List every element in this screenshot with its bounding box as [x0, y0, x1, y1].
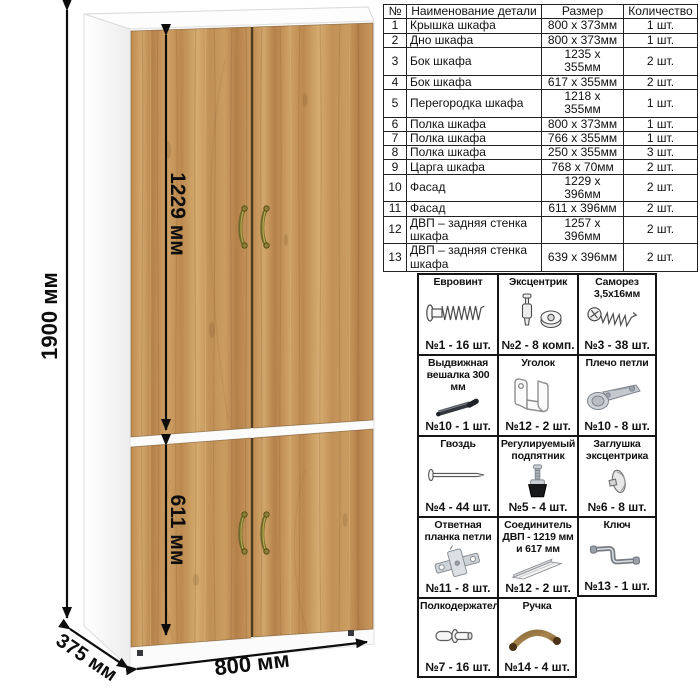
hardware-item-count: №4 - 44 шт.	[425, 500, 491, 515]
hardware-item-count: №10 - 1 шт.	[425, 419, 491, 434]
part-name: Полка шкафа	[407, 146, 542, 160]
shelf-pin-icon	[420, 613, 496, 660]
hex-key-icon	[580, 532, 654, 579]
table-row: 7 Полка шкафа 766 х 355мм 1 шт.	[384, 131, 698, 145]
part-size: 250 х 355мм	[542, 146, 624, 160]
wardrobe-body	[84, 7, 374, 690]
part-name: Царга шкафа	[407, 160, 542, 174]
hardware-item-cam-cap: Заглушка эксцентрика №6 - 8 шт.	[577, 435, 657, 516]
hinge-arm-icon	[580, 370, 654, 419]
part-num: 5	[384, 89, 407, 117]
table-row: 5 Перегородка шкафа 1218 х 355мм 1 шт.	[384, 89, 698, 117]
part-name: ДВП – задняя стенка шкафа	[407, 216, 542, 244]
hardware-item-count: №5 - 4 шт.	[509, 500, 568, 515]
part-size: 800 х 373мм	[542, 33, 624, 47]
hardware-item-hanger: Выдвижная вешалка 300 мм №10 - 1 шт.	[417, 354, 497, 435]
table-row: 13 ДВП – задняя стенка шкафа 639 х 396мм…	[384, 244, 698, 272]
upper-facade-dimension-label: 1229 мм	[166, 172, 189, 256]
hardware-item-title: Соединитель ДВП - 1219 мм и 617 мм	[500, 520, 576, 555]
upper-left-door	[131, 27, 251, 437]
part-num: 12	[384, 216, 407, 244]
table-row: 12 ДВП – задняя стенка шкафа 1257 х 396м…	[384, 216, 698, 244]
hardware-item-count: №14 - 4 шт.	[504, 660, 570, 675]
table-row: 1 Крышка шкафа 800 х 373мм 1 шт.	[384, 19, 698, 33]
part-num: 3	[384, 47, 407, 75]
hardware-item-title: Заглушка эксцентрика	[580, 439, 654, 463]
part-name: Дно шкафа	[407, 33, 542, 47]
handle-icon	[500, 613, 574, 660]
part-name: Крышка шкафа	[407, 19, 542, 33]
euro-screw-icon	[420, 289, 496, 338]
self-tapping-screw-icon	[580, 301, 654, 339]
hardware-item-title: Полкодержатель	[420, 601, 496, 613]
part-num: 8	[384, 146, 407, 160]
hardware-item-key: Ключ №13 - 1 шт.	[577, 516, 657, 597]
hardware-item-bracket: Уголок №12 - 2 шт.	[497, 354, 577, 435]
hardware-item-count: №13 - 1 шт.	[584, 579, 650, 594]
hardware-item-hinge-arm: Плечо петли №10 - 8 шт.	[577, 354, 657, 435]
part-num: 6	[384, 117, 407, 131]
hardware-item-handle: Ручка №14 - 4 шт.	[497, 597, 577, 678]
hardware-item-title: Выдвижная вешалка 300 мм	[420, 358, 496, 393]
lower-left-door	[131, 438, 251, 647]
foot-left	[137, 650, 143, 656]
hinge-plate-icon	[420, 544, 496, 582]
part-qty: 2 шт.	[624, 174, 698, 202]
hardware-item-title: Евровинт	[420, 277, 496, 289]
table-row: 9 Царга шкафа 768 х 70мм 2 шт.	[384, 160, 698, 174]
part-size: 768 х 70мм	[542, 160, 624, 174]
hardware-item-hdf-connector: Соединитель ДВП - 1219 мм и 617 мм №12 -…	[497, 516, 577, 597]
hardware-grid: Евровинт №1 - 16 шт. Эксцентрик	[417, 273, 657, 678]
part-qty: 2 шт.	[624, 202, 698, 216]
part-num: 7	[384, 131, 407, 145]
hardware-item-title: Регулируемый подпятник	[500, 439, 576, 463]
part-name: Полка шкафа	[407, 131, 542, 145]
col-header-size: Размер	[542, 5, 624, 19]
part-size: 611 х 396мм	[542, 202, 624, 216]
part-qty: 1 шт.	[624, 19, 698, 33]
hardware-item-title: Ручка	[500, 601, 574, 613]
part-qty: 1 шт.	[624, 89, 698, 117]
lower-facade-dimension-label: 611 мм	[166, 495, 189, 566]
hardware-item-shelf-pin: Полкодержатель №7 - 16 шт.	[417, 597, 497, 678]
hardware-item-title: Эксцентрик	[500, 277, 576, 289]
part-size: 617 х 355мм	[542, 75, 624, 89]
hardware-item-title: Уголок	[500, 358, 576, 370]
hardware-item-title: Ключ	[580, 520, 654, 532]
part-num: 2	[384, 33, 407, 47]
col-header-name: Наименование детали	[407, 5, 542, 19]
hardware-item-samorez: Саморез 3,5х16мм №3 - 38 шт.	[577, 273, 657, 354]
col-header-qty: Количество	[624, 5, 698, 19]
hardware-item-count: №2 - 8 комп.	[501, 338, 574, 353]
adjustable-foot-icon	[500, 463, 576, 501]
part-size: 1218 х 355мм	[542, 89, 624, 117]
part-num: 9	[384, 160, 407, 174]
lower-right-door	[253, 429, 373, 637]
part-name: Бок шкафа	[407, 47, 542, 75]
part-size: 639 х 396мм	[542, 244, 624, 272]
part-size: 1235 х 355мм	[542, 47, 624, 75]
part-size: 1257 х 396мм	[542, 216, 624, 244]
part-size: 1229 х 396мм	[542, 174, 624, 202]
table-row: 11 Фасад 611 х 396мм 2 шт.	[384, 202, 698, 216]
part-qty: 2 шт.	[624, 216, 698, 244]
part-num: 1	[384, 19, 407, 33]
part-qty: 2 шт.	[624, 47, 698, 75]
hardware-item-hinge-plate: Ответная планка петли №11 - 8 шт.	[417, 516, 497, 597]
part-qty: 2 шт.	[624, 244, 698, 272]
cam-cap-icon	[580, 463, 654, 501]
table-row: 6 Полка шкафа 800 х 373мм 1 шт.	[384, 117, 698, 131]
hardware-item-eccentric: Эксцентрик №2 - 8 комп.	[497, 273, 577, 354]
hardware-item-count: №12 - 2 шт.	[505, 419, 571, 434]
hdf-connector-icon	[500, 555, 576, 581]
part-name: Перегородка шкафа	[407, 89, 542, 117]
hardware-item-count: №3 - 38 шт.	[584, 338, 650, 353]
wardrobe-side-panel	[84, 14, 130, 668]
hardware-item-foot: Регулируемый подпятник №5 - 4 шт.	[497, 435, 577, 516]
part-size: 766 х 355мм	[542, 131, 624, 145]
table-row: 4 Бок шкафа 617 х 355мм 2 шт.	[384, 75, 698, 89]
nail-icon	[420, 451, 496, 500]
table-row: 10 Фасад 1229 х 396мм 2 шт.	[384, 174, 698, 202]
part-num: 11	[384, 202, 407, 216]
hardware-item-count: №1 - 16 шт.	[425, 338, 491, 353]
part-name: Фасад	[407, 174, 542, 202]
hardware-item-title: Ответная планка петли	[420, 520, 496, 544]
cam-lock-icon	[500, 289, 576, 338]
table-header-row: № Наименование детали Размер Количество	[384, 5, 698, 19]
part-qty: 2 шт.	[624, 160, 698, 174]
part-name: ДВП – задняя стенка шкафа	[407, 244, 542, 272]
table-row: 3 Бок шкафа 1235 х 355мм 2 шт.	[384, 47, 698, 75]
hardware-item-count: №6 - 8 шт.	[588, 500, 647, 515]
part-name: Бок шкафа	[407, 75, 542, 89]
part-size: 800 х 373мм	[542, 19, 624, 33]
hardware-item-count: №10 - 8 шт.	[584, 419, 650, 434]
hardware-item-nail: Гвоздь №4 - 44 шт.	[417, 435, 497, 516]
hardware-item-title: Гвоздь	[420, 439, 496, 451]
part-name: Фасад	[407, 202, 542, 216]
part-size: 800 х 373мм	[542, 117, 624, 131]
assembly-sheet: 1900 мм 1229 мм 611 мм 800 мм 375 мм № Н…	[0, 0, 700, 700]
parts-table: № Наименование детали Размер Количество …	[383, 4, 698, 272]
part-qty: 2 шт.	[624, 75, 698, 89]
part-num: 4	[384, 75, 407, 89]
hardware-item-title: Саморез 3,5х16мм	[580, 277, 654, 301]
pullout-hanger-icon	[420, 393, 496, 419]
foot-right	[348, 630, 354, 636]
corner-bracket-icon	[500, 370, 576, 419]
hardware-item-count: №11 - 8 шт.	[426, 581, 491, 596]
height-dimension-label: 1900 мм	[37, 272, 62, 360]
part-qty: 3 шт.	[624, 146, 698, 160]
hardware-item-count: №12 - 2 шт.	[505, 581, 571, 596]
hardware-item-title: Плечо петли	[580, 358, 654, 370]
part-qty: 1 шт.	[624, 117, 698, 131]
col-header-num: №	[384, 5, 407, 19]
part-qty: 1 шт.	[624, 33, 698, 47]
wardrobe-illustration: 1900 мм 1229 мм 611 мм 800 мм 375 мм	[0, 0, 400, 700]
hardware-item-eurovint: Евровинт №1 - 16 шт.	[417, 273, 497, 354]
part-num: 10	[384, 174, 407, 202]
table-row: 2 Дно шкафа 800 х 373мм 1 шт.	[384, 33, 698, 47]
part-name: Полка шкафа	[407, 117, 542, 131]
hardware-item-count: №7 - 16 шт.	[425, 660, 491, 675]
part-qty: 1 шт.	[624, 131, 698, 145]
upper-right-door	[253, 23, 373, 428]
table-row: 8 Полка шкафа 250 х 355мм 3 шт.	[384, 146, 698, 160]
part-num: 13	[384, 244, 407, 272]
